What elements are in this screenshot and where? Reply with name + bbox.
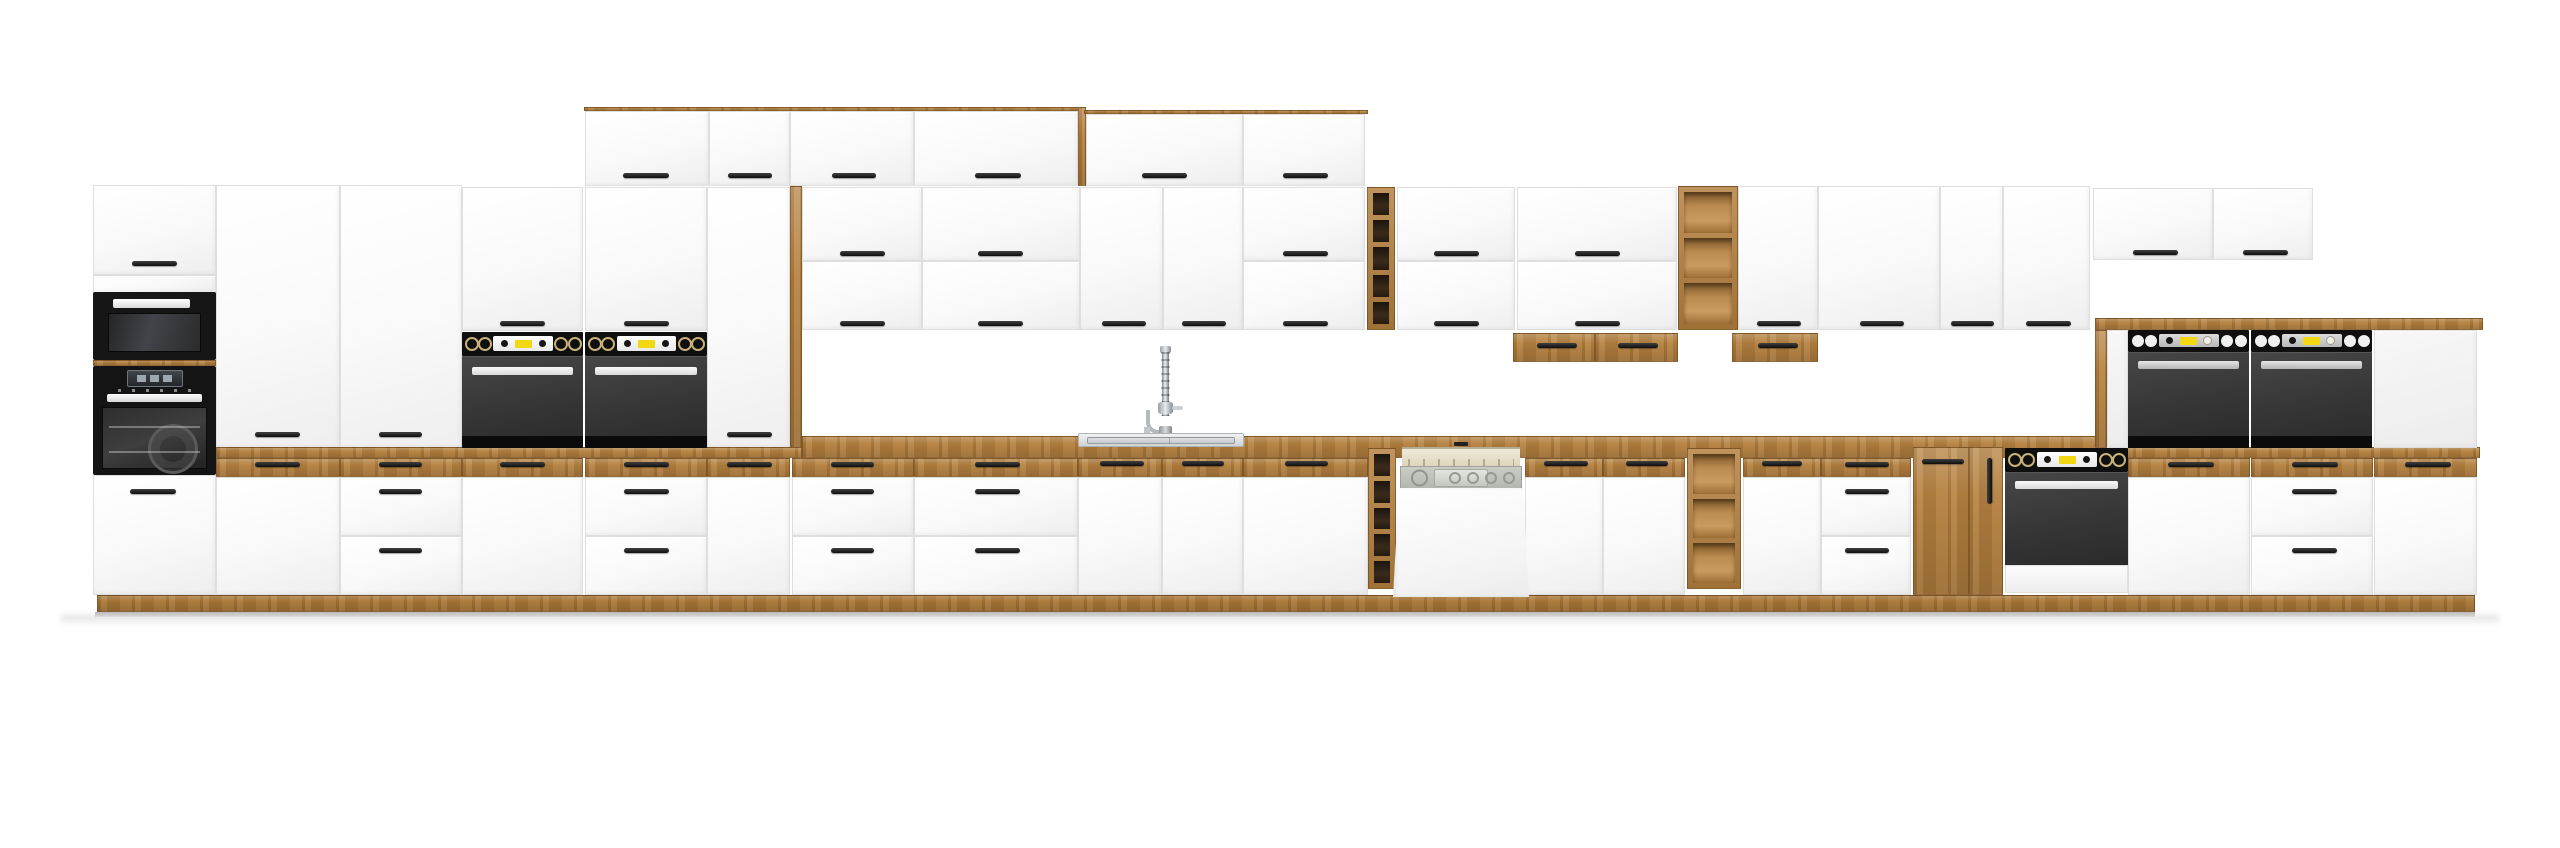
tall-cabinet-narrow-door-handle	[727, 432, 772, 437]
wall-cabinet-4b	[1397, 261, 1515, 330]
wall-cabinet-sink-left	[1080, 187, 1163, 330]
under-counter-oven-door-handle	[2015, 481, 2118, 489]
under-counter-oven-control-panel	[2005, 448, 2128, 472]
oven-tower-1-oven-knob-1	[465, 337, 479, 351]
wine-rack-column-cell-4	[1374, 534, 1390, 556]
eye-level-oven-2-knob-3	[2344, 335, 2356, 347]
wine-rack-column-cell-5	[1374, 561, 1390, 583]
oven-tower-2-oak-drawer-handle	[624, 462, 669, 467]
oak-pantry-door-right-handle	[1987, 458, 1992, 504]
sink-cabinet-oak-drawer-1	[1078, 458, 1162, 477]
base-drawer-1821-1	[1821, 477, 1911, 536]
base-cabinet-1243-door	[1243, 477, 1368, 595]
wall-open-shelf-wide	[1678, 186, 1738, 330]
under-counter-oven-knob-2	[2021, 453, 2035, 467]
wall-cabinet-2b-handle	[978, 321, 1023, 326]
sink-cabinet-door-1	[1078, 477, 1162, 595]
oven-tower-1-oven-knob-4	[568, 337, 582, 351]
oven-tower-2-oven-knob-1	[588, 337, 602, 351]
base-cabinet-2128-oak-drawer	[2128, 458, 2250, 477]
base-cabinet-1742-door	[1743, 477, 1821, 595]
under-counter-oven-display	[2037, 452, 2097, 467]
base-cabinet-2374-door	[2374, 477, 2477, 595]
eye-level-oven-2-knob-4	[2358, 335, 2370, 347]
eye-level-oven-1-display-dot-right	[2203, 336, 2212, 345]
eye-level-oven-1-knob-3	[2221, 335, 2233, 347]
wall-cabinet-4a	[1397, 187, 1515, 261]
tall-pantry-oak-drawer-1-handle	[255, 462, 300, 467]
base-drawer-792-2	[792, 536, 914, 595]
wall-open-shelf-wide-cell-2	[1684, 238, 1732, 279]
base-cabinet-792-oak-drawer	[792, 458, 914, 477]
oven-tower-1-base-door	[462, 477, 583, 595]
wall-cabinet-8-handle	[1951, 321, 1994, 326]
oven-tower-2-oven	[585, 332, 707, 448]
oven-tower-2-oven-knob-2	[601, 337, 615, 351]
tall-oven-housing-top-door	[93, 185, 216, 275]
built-in-microwave-window	[108, 313, 201, 352]
tall-pantry-door-2	[340, 185, 462, 448]
under-counter-oven-knob-3	[2099, 453, 2113, 467]
oven-tower-1-oven-display-timer	[515, 340, 532, 348]
wall-open-shelf-narrow	[1367, 187, 1395, 330]
bank-filler-left	[2107, 330, 2128, 448]
dishwasher-button-1	[1449, 472, 1461, 484]
plinth	[97, 595, 2475, 612]
tall-pantry-base-front	[216, 477, 340, 595]
eye-level-oven-2-door-handle	[2261, 361, 2363, 369]
wall-cabinet-2a-handle	[978, 251, 1023, 256]
wood-end-panel-left	[790, 186, 802, 448]
sink-basin	[1078, 433, 1244, 447]
open-shelf-low	[1687, 448, 1741, 589]
oven-tower-2-upper-door-handle	[624, 321, 669, 326]
base-drawer-915-2-handle	[975, 548, 1020, 553]
oven-tower-2-oven-control-panel	[585, 332, 707, 356]
top-cabinet-4-handle	[975, 173, 1021, 178]
oven-tower-2-drawer-1	[585, 477, 707, 536]
eye-level-oven-2-knob-2	[2268, 335, 2280, 347]
top-cabinet-5	[1086, 114, 1243, 186]
wall-cabinet-1a-handle	[840, 251, 885, 256]
built-in-compact-oven	[93, 366, 216, 475]
oak-pantry-door-left	[1913, 447, 1969, 595]
wall-cabinet-3b-handle	[1283, 321, 1328, 326]
sink-cabinet-oak-drawer-2-handle	[1182, 461, 1224, 466]
wall-cabinet-1b-handle	[840, 321, 885, 326]
eye-level-oven-2-display-timer	[2303, 337, 2320, 345]
eye-level-oven-2-door	[2251, 352, 2372, 448]
wall-cabinet-4b-handle	[1434, 321, 1479, 326]
oven-tower-2-oven-door-base	[585, 436, 707, 448]
sink-basin-divider	[1169, 437, 1170, 444]
built-in-compact-oven-display-seg-1	[137, 375, 146, 382]
eye-level-oven-2-door-base	[2251, 436, 2372, 448]
dishwasher	[1398, 447, 1524, 597]
wall-cabinet-1b	[802, 261, 922, 330]
under-counter-oven-display-dot-left	[2044, 456, 2051, 463]
oven-tower-2-drawer-1-handle	[624, 489, 669, 494]
eye-level-oven-1-display-timer	[2180, 337, 2197, 345]
wall-cabinet-sink-right	[1163, 187, 1243, 330]
under-counter-oven	[2005, 448, 2128, 593]
wall-cabinet-10b	[2213, 188, 2313, 260]
base-drawer-915-1-handle	[975, 489, 1020, 494]
under-counter-oven-knob-4	[2112, 453, 2126, 467]
eye-level-oven-1-door	[2128, 352, 2249, 448]
built-in-compact-oven-shelf-1	[109, 426, 200, 428]
oven-tower-1-oven-display-dot-left	[501, 340, 508, 347]
wine-rack-column	[1368, 448, 1396, 589]
oven-tower-2-oven-display-dot-right	[662, 340, 669, 347]
top-cabinet-6-handle	[1283, 173, 1328, 178]
raised-counter-top	[2095, 318, 2483, 330]
under-cabinet-box-3-handle	[1758, 343, 1798, 348]
dishwasher-vent	[1454, 442, 1468, 446]
base-cabinet-1605-door	[1603, 477, 1685, 595]
tall-oven-housing-bottom-door-handle	[130, 489, 176, 494]
under-counter-oven-knob-1	[2008, 453, 2022, 467]
oven-tower-1-oven-door-handle	[472, 367, 574, 375]
wall-cabinet-9	[2003, 186, 2090, 330]
built-in-compact-oven-display-seg-2	[150, 375, 159, 382]
base-drawer-2251-2-handle	[2292, 548, 2337, 553]
base-cabinet-1742-oak-drawer	[1743, 458, 1821, 477]
wall-cabinet-5a-handle	[1575, 251, 1620, 256]
wall-open-shelf-narrow-cell-2	[1373, 220, 1389, 242]
built-in-compact-oven-fan	[148, 424, 198, 474]
oven-tower-2-oven-display	[617, 336, 677, 351]
oven-tower-2-oven-knob-3	[678, 337, 692, 351]
tall-pantry-door-1-handle	[255, 432, 300, 437]
tall-pantry-oak-drawer-2	[340, 458, 462, 477]
wall-cabinet-4a-handle	[1434, 251, 1479, 256]
base-drawer-1821-1-handle	[1845, 489, 1889, 494]
base-cabinet-1742-oak-drawer-handle	[1762, 461, 1802, 466]
base-cabinet-792-oak-drawer-handle	[831, 462, 874, 467]
base-cabinet-2128-oak-drawer-handle	[2168, 462, 2214, 467]
built-in-compact-oven-buttons	[118, 389, 192, 392]
wall-cabinet-3a	[1243, 187, 1365, 261]
oven-tower-1-oven	[462, 332, 583, 448]
built-in-compact-oven-window	[102, 407, 207, 469]
base-cabinet-1605-oak-drawer	[1603, 458, 1685, 477]
under-counter-oven-lower-front	[2005, 565, 2128, 593]
wall-open-shelf-narrow-cell-5	[1373, 302, 1389, 324]
wall-open-shelf-narrow-cell-3	[1373, 247, 1389, 269]
eye-level-oven-1	[2128, 330, 2249, 448]
wall-cabinet-6	[1738, 186, 1818, 330]
under-cabinet-box-2	[1595, 333, 1678, 362]
oven-tower-2-oven-door-handle	[595, 367, 698, 375]
tall-oven-housing-bottom-door	[93, 475, 216, 595]
oven-tower-2-oak-drawer	[585, 458, 707, 477]
tall-cabinet-narrow-oak-drawer-handle	[727, 462, 772, 467]
dishwasher-button-2	[1467, 472, 1479, 484]
wall-cabinet-10b-handle	[2243, 250, 2288, 255]
base-cabinet-915-oak-drawer	[914, 458, 1078, 477]
oven-tower-1-oak-drawer	[462, 458, 583, 477]
sink-cabinet-oak-drawer-2	[1162, 458, 1243, 477]
oven-tower-1-oak-drawer-handle	[500, 462, 545, 467]
oven-tower-1-oven-control-panel	[462, 332, 583, 356]
oven-tower-1-oven-display	[493, 336, 552, 351]
oven-tower-1-upper-door	[462, 187, 583, 331]
dishwasher-button-3	[1485, 472, 1497, 484]
top-row-divider	[1078, 107, 1086, 186]
base-cabinet-1243-oak-drawer-handle	[1285, 461, 1328, 466]
base-cabinet-2251-oak-drawer	[2251, 458, 2373, 477]
top-cabinet-2-handle	[728, 173, 772, 178]
oven-tower-2-oven-display-dot-left	[624, 340, 631, 347]
tall-oven-housing-top-door-handle	[132, 261, 177, 266]
top-cabinet-5-handle	[1142, 173, 1187, 178]
built-in-compact-oven-handle-bar	[107, 394, 202, 402]
dishwasher-button-4	[1503, 472, 1515, 484]
tall-cabinet-narrow-oak-drawer	[707, 458, 790, 477]
top-cabinet-3-handle	[832, 173, 876, 178]
oven-tower-2-oven-display-timer	[638, 340, 655, 348]
eye-level-oven-1-door-base	[2128, 436, 2249, 448]
wall-cabinet-7-handle	[1860, 321, 1904, 326]
base-drawer-341-1-handle	[379, 489, 422, 494]
sink-basin-bowl	[1087, 437, 1235, 444]
oven-tower-1-oven-door-base	[462, 436, 583, 448]
top-cabinet-1	[585, 111, 709, 186]
wall-cabinet-5b-handle	[1575, 321, 1620, 326]
wall-cabinet-3b	[1243, 261, 1365, 330]
base-drawer-341-2-handle	[379, 548, 422, 553]
base-cabinet-1525-oak-drawer	[1525, 458, 1603, 477]
under-cabinet-box-1-handle	[1537, 343, 1577, 348]
oven-tower-2-upper-door	[585, 187, 707, 331]
base-drawer-915-2	[914, 536, 1078, 595]
base-cabinet-2251-oak-drawer-handle	[2292, 462, 2338, 467]
base-cabinet-1821-oak-drawer	[1821, 458, 1911, 477]
wine-rack-column-cell-3	[1374, 508, 1390, 530]
base-cabinet-2128-door	[2128, 477, 2250, 595]
oven-tower-2-drawer-2	[585, 536, 707, 595]
wall-open-shelf-wide-cell-3	[1684, 283, 1732, 324]
eye-level-oven-1-display	[2159, 334, 2218, 347]
base-cabinet-915-oak-drawer-handle	[975, 462, 1020, 467]
dishwasher-buttons	[1449, 472, 1515, 484]
under-cabinet-box-1	[1513, 333, 1595, 362]
base-cabinet-1821-oak-drawer-handle	[1845, 462, 1889, 467]
open-shelf-low-cell-3	[1693, 543, 1735, 583]
wall-cabinet-9-handle	[2026, 321, 2071, 326]
sink-cabinet-door-2	[1162, 477, 1243, 595]
raised-end-panel	[2095, 330, 2107, 448]
base-cabinet-1243-oak-drawer	[1243, 458, 1368, 477]
eye-level-oven-2-control-panel	[2251, 330, 2372, 352]
wall-cabinet-8	[1940, 186, 2003, 330]
tall-cabinet-narrow-door	[707, 187, 790, 448]
dishwasher-dial	[1411, 470, 1428, 487]
oven-tower-2-oven-knob-4	[691, 337, 705, 351]
eye-level-oven-2	[2251, 330, 2372, 448]
tall-pantry-door-1	[216, 185, 340, 448]
wall-cabinet-10a-handle	[2133, 250, 2178, 255]
oven-tower-1-oven-display-dot-right	[539, 340, 546, 347]
base-drawer-792-2-handle	[831, 548, 874, 553]
under-counter-oven-display-timer	[2059, 456, 2076, 464]
tall-cabinet-narrow-base-door	[707, 477, 790, 595]
wall-cabinet-7	[1818, 186, 1940, 330]
dishwasher-interior	[1402, 447, 1520, 468]
oven-tower-2-drawer-2-handle	[624, 548, 669, 553]
base-drawer-341-1	[340, 477, 462, 536]
eye-level-oven-2-display	[2282, 334, 2341, 347]
eye-level-oven-1-control-panel	[2128, 330, 2249, 352]
oven-tower-1-oven-knob-3	[554, 337, 568, 351]
kitchen-faucet	[1143, 346, 1187, 434]
top-cabinet-2	[709, 111, 790, 186]
wall-open-shelf-wide-cell-1	[1684, 192, 1732, 233]
wall-cabinet-2b	[922, 261, 1080, 330]
tall-pantry-oak-drawer-1	[216, 458, 340, 477]
base-cabinet-2374-oak-drawer-handle	[2405, 462, 2451, 467]
base-drawer-2251-1	[2251, 477, 2373, 536]
base-drawer-2251-2	[2251, 536, 2373, 595]
tall-pantry-oak-drawer-2-handle	[379, 462, 422, 467]
sink-cabinet-oak-drawer-1-handle	[1100, 461, 1144, 466]
built-in-microwave	[93, 292, 216, 360]
top-cabinet-6	[1243, 114, 1365, 186]
built-in-compact-oven-shelf-2	[109, 451, 200, 453]
eye-level-oven-1-knob-4	[2235, 335, 2247, 347]
wall-cabinet-10a	[2093, 188, 2213, 260]
tall-pantry-door-2-handle	[379, 432, 422, 437]
dishwasher-control-strip	[1400, 466, 1522, 490]
under-cabinet-box-3	[1732, 333, 1818, 362]
wall-cabinet-5a	[1517, 187, 1677, 261]
floor-shadow	[60, 615, 2500, 625]
wall-cabinet-6-handle	[1757, 321, 1801, 326]
eye-level-oven-2-display-dot-left	[2289, 337, 2296, 344]
open-shelf-low-cell-2	[1693, 499, 1735, 539]
oak-pantry-door-right	[1969, 447, 2003, 595]
base-drawer-915-1	[914, 477, 1078, 536]
eye-level-oven-1-door-handle	[2138, 361, 2240, 369]
built-in-microwave-handle-bar	[113, 299, 190, 308]
base-drawer-2251-1-handle	[2292, 489, 2337, 494]
oven-tower-2-oven-door	[585, 356, 707, 448]
base-drawer-341-2	[340, 536, 462, 595]
top-cabinet-4	[914, 111, 1078, 186]
built-in-compact-oven-display-seg-3	[163, 375, 172, 382]
base-cabinet-1525-oak-drawer-handle	[1544, 461, 1588, 466]
eye-level-oven-1-knob-2	[2145, 335, 2157, 347]
top-cabinet-3	[790, 111, 914, 186]
wall-cabinet-5b	[1517, 261, 1677, 330]
base-cabinet-1605-oak-drawer-handle	[1626, 461, 1668, 466]
base-cabinet-1525-door	[1525, 477, 1603, 595]
base-drawer-792-1	[792, 477, 914, 536]
wall-cabinet-sink-right-handle	[1182, 321, 1226, 326]
countertop-left	[216, 447, 802, 458]
kitchen-set-render	[0, 0, 2560, 848]
base-drawer-792-1-handle	[831, 489, 874, 494]
under-counter-oven-door	[2005, 472, 2128, 567]
eye-level-oven-2-display-dot-right	[2326, 336, 2335, 345]
eye-level-oven-1-display-dot-left	[2166, 337, 2173, 344]
base-drawer-1821-2-handle	[1845, 548, 1889, 553]
kitchen-faucet-lever	[1172, 406, 1183, 410]
dishwasher-door-panel	[1393, 488, 1529, 597]
oven-tower-1-oven-knob-2	[478, 337, 492, 351]
oven-tower-1-oven-door	[462, 356, 583, 448]
wall-open-shelf-narrow-cell-1	[1373, 193, 1389, 215]
eye-level-oven-2-knob-1	[2255, 335, 2267, 347]
base-drawer-1821-2	[1821, 536, 1911, 595]
built-in-compact-oven-display	[127, 370, 183, 387]
wall-open-shelf-narrow-cell-4	[1373, 275, 1389, 297]
countertop-right	[2098, 447, 2480, 458]
wall-cabinet-3a-handle	[1283, 251, 1328, 256]
open-shelf-low-cell-1	[1693, 454, 1735, 494]
wine-rack-column-cell-2	[1374, 481, 1390, 503]
base-cabinet-2374-oak-drawer	[2374, 458, 2477, 477]
wall-cabinet-2a	[922, 187, 1080, 261]
eye-level-oven-1-knob-1	[2132, 335, 2144, 347]
wall-cabinet-1a	[802, 187, 922, 261]
wine-rack-column-cell-1	[1374, 454, 1390, 476]
oak-pantry-door-left-handle	[1922, 459, 1964, 464]
under-cabinet-box-2-handle	[1618, 343, 1658, 348]
tall-oven-housing-filler	[93, 275, 216, 293]
bank-filler-right	[2374, 330, 2477, 448]
wall-cabinet-sink-left-handle	[1102, 321, 1146, 326]
top-cabinet-1-handle	[623, 173, 669, 178]
oven-tower-1-upper-door-handle	[500, 321, 545, 326]
under-counter-oven-display-dot-right	[2083, 456, 2090, 463]
